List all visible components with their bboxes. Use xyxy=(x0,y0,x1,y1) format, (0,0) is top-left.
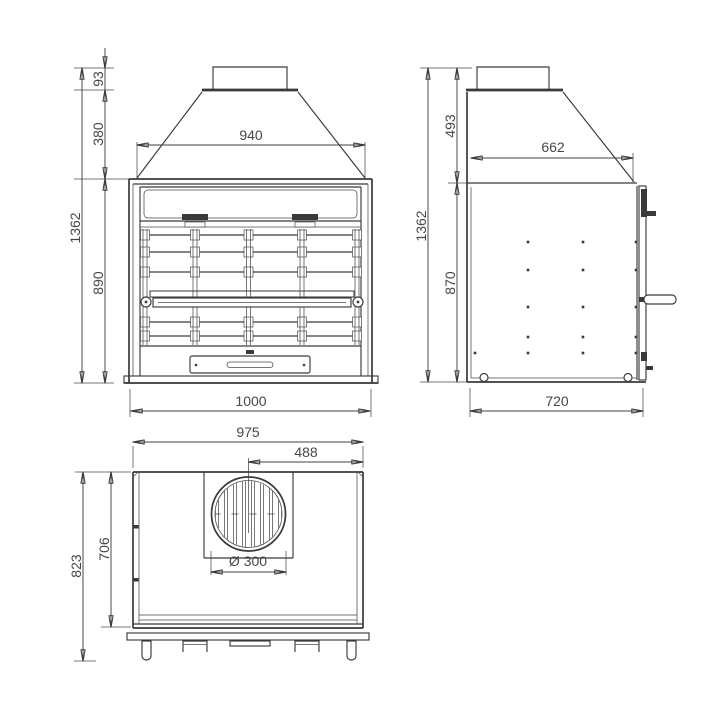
side-door-panel xyxy=(639,186,676,380)
dim-side-hood-height: 493 xyxy=(442,114,458,138)
dim-plan-body-depth: 706 xyxy=(96,537,112,561)
front-grill-rack xyxy=(141,291,363,307)
center-plate xyxy=(230,641,270,646)
dim-front-firebox-height: 890 xyxy=(90,271,106,295)
front-firebox-grid xyxy=(140,229,362,346)
plan-view: 975 488 Ø 300 823 706 xyxy=(68,424,369,661)
front-ash-drawer xyxy=(133,350,368,376)
front-view: 93 380 1362 890 940 1000 xyxy=(67,48,378,417)
plan-front-assembly xyxy=(127,633,369,660)
plan-body-outline xyxy=(133,472,363,628)
dim-plan-flue-offset: 488 xyxy=(294,444,318,460)
front-base-plate xyxy=(124,376,378,383)
side-flue-duct xyxy=(466,67,563,90)
window-tab-right xyxy=(292,214,318,220)
side-vent-holes xyxy=(474,241,638,355)
leg-right xyxy=(347,641,356,660)
dim-plan-overall-width: 975 xyxy=(236,424,260,440)
dim-front-overall-height: 1362 xyxy=(67,212,83,243)
leg-left xyxy=(142,641,151,660)
side-foot-hole-left xyxy=(480,374,488,382)
door-hinge-top xyxy=(641,189,647,217)
dim-side-overall-height: 1362 xyxy=(413,210,429,241)
dim-front-duct-height: 93 xyxy=(90,71,106,87)
door-handle xyxy=(644,295,676,304)
side-dimension-lines xyxy=(428,68,643,411)
front-flue-duct xyxy=(202,67,298,90)
technical-drawing: 93 380 1362 890 940 1000 xyxy=(0,0,724,724)
dim-side-hood-top-depth: 662 xyxy=(541,139,565,155)
bracket-right xyxy=(295,641,319,652)
front-ledge xyxy=(127,633,369,640)
side-body-outline xyxy=(467,186,646,382)
dim-side-body-height: 870 xyxy=(442,271,458,295)
door-hinge-bottom xyxy=(641,352,647,361)
window-tab-left xyxy=(182,214,208,220)
flue-grate-bars xyxy=(214,478,282,550)
front-extension-lines xyxy=(74,68,371,417)
front-window-band xyxy=(140,187,361,227)
serrated-grate xyxy=(150,291,354,297)
dim-plan-flue-diameter: Ø 300 xyxy=(229,553,267,569)
bracket-left xyxy=(183,641,207,652)
side-hood xyxy=(467,92,637,382)
dim-front-opening-width: 940 xyxy=(239,127,263,143)
side-foot-hole-right xyxy=(624,374,632,382)
dim-side-overall-depth: 720 xyxy=(545,393,569,409)
dim-front-hood-height: 380 xyxy=(90,122,106,146)
side-view: 493 1362 870 662 720 xyxy=(413,67,676,417)
dim-front-overall-width: 1000 xyxy=(235,393,266,409)
dim-plan-overall-depth: 823 xyxy=(68,554,84,578)
drawer-handle xyxy=(227,362,273,368)
